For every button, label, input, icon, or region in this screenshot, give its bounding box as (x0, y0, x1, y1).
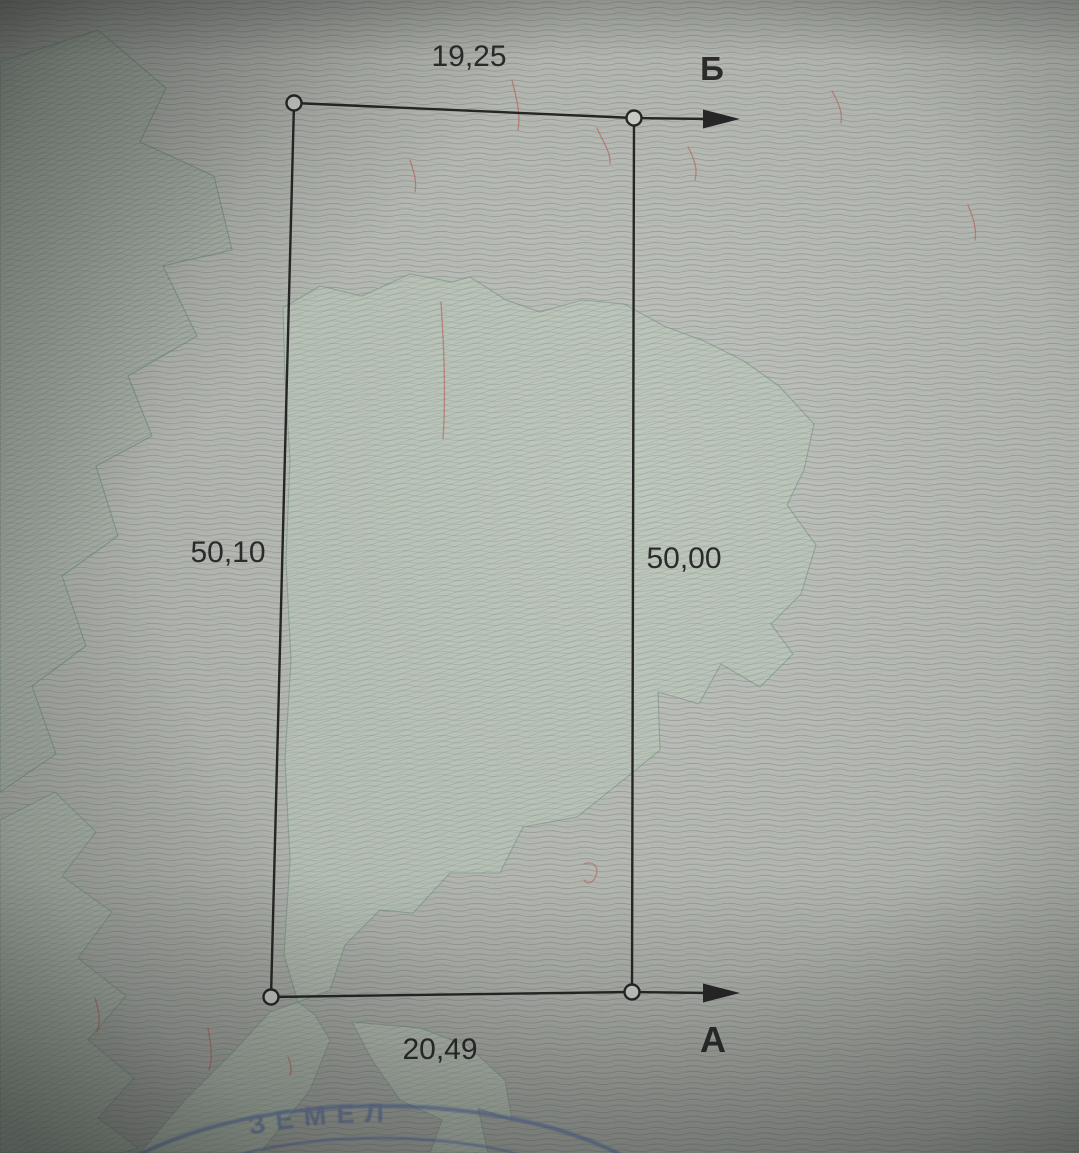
land-plot-plan-scan: ЗЕМЕЛ 19,25 Б 50,10 50,00 20,49 А (0, 0, 1079, 1153)
photo-lighting-vignette (0, 0, 1079, 1153)
photographed-document: ЗЕМЕЛ 19,25 Б 50,10 50,00 20,49 А (0, 0, 1079, 1153)
